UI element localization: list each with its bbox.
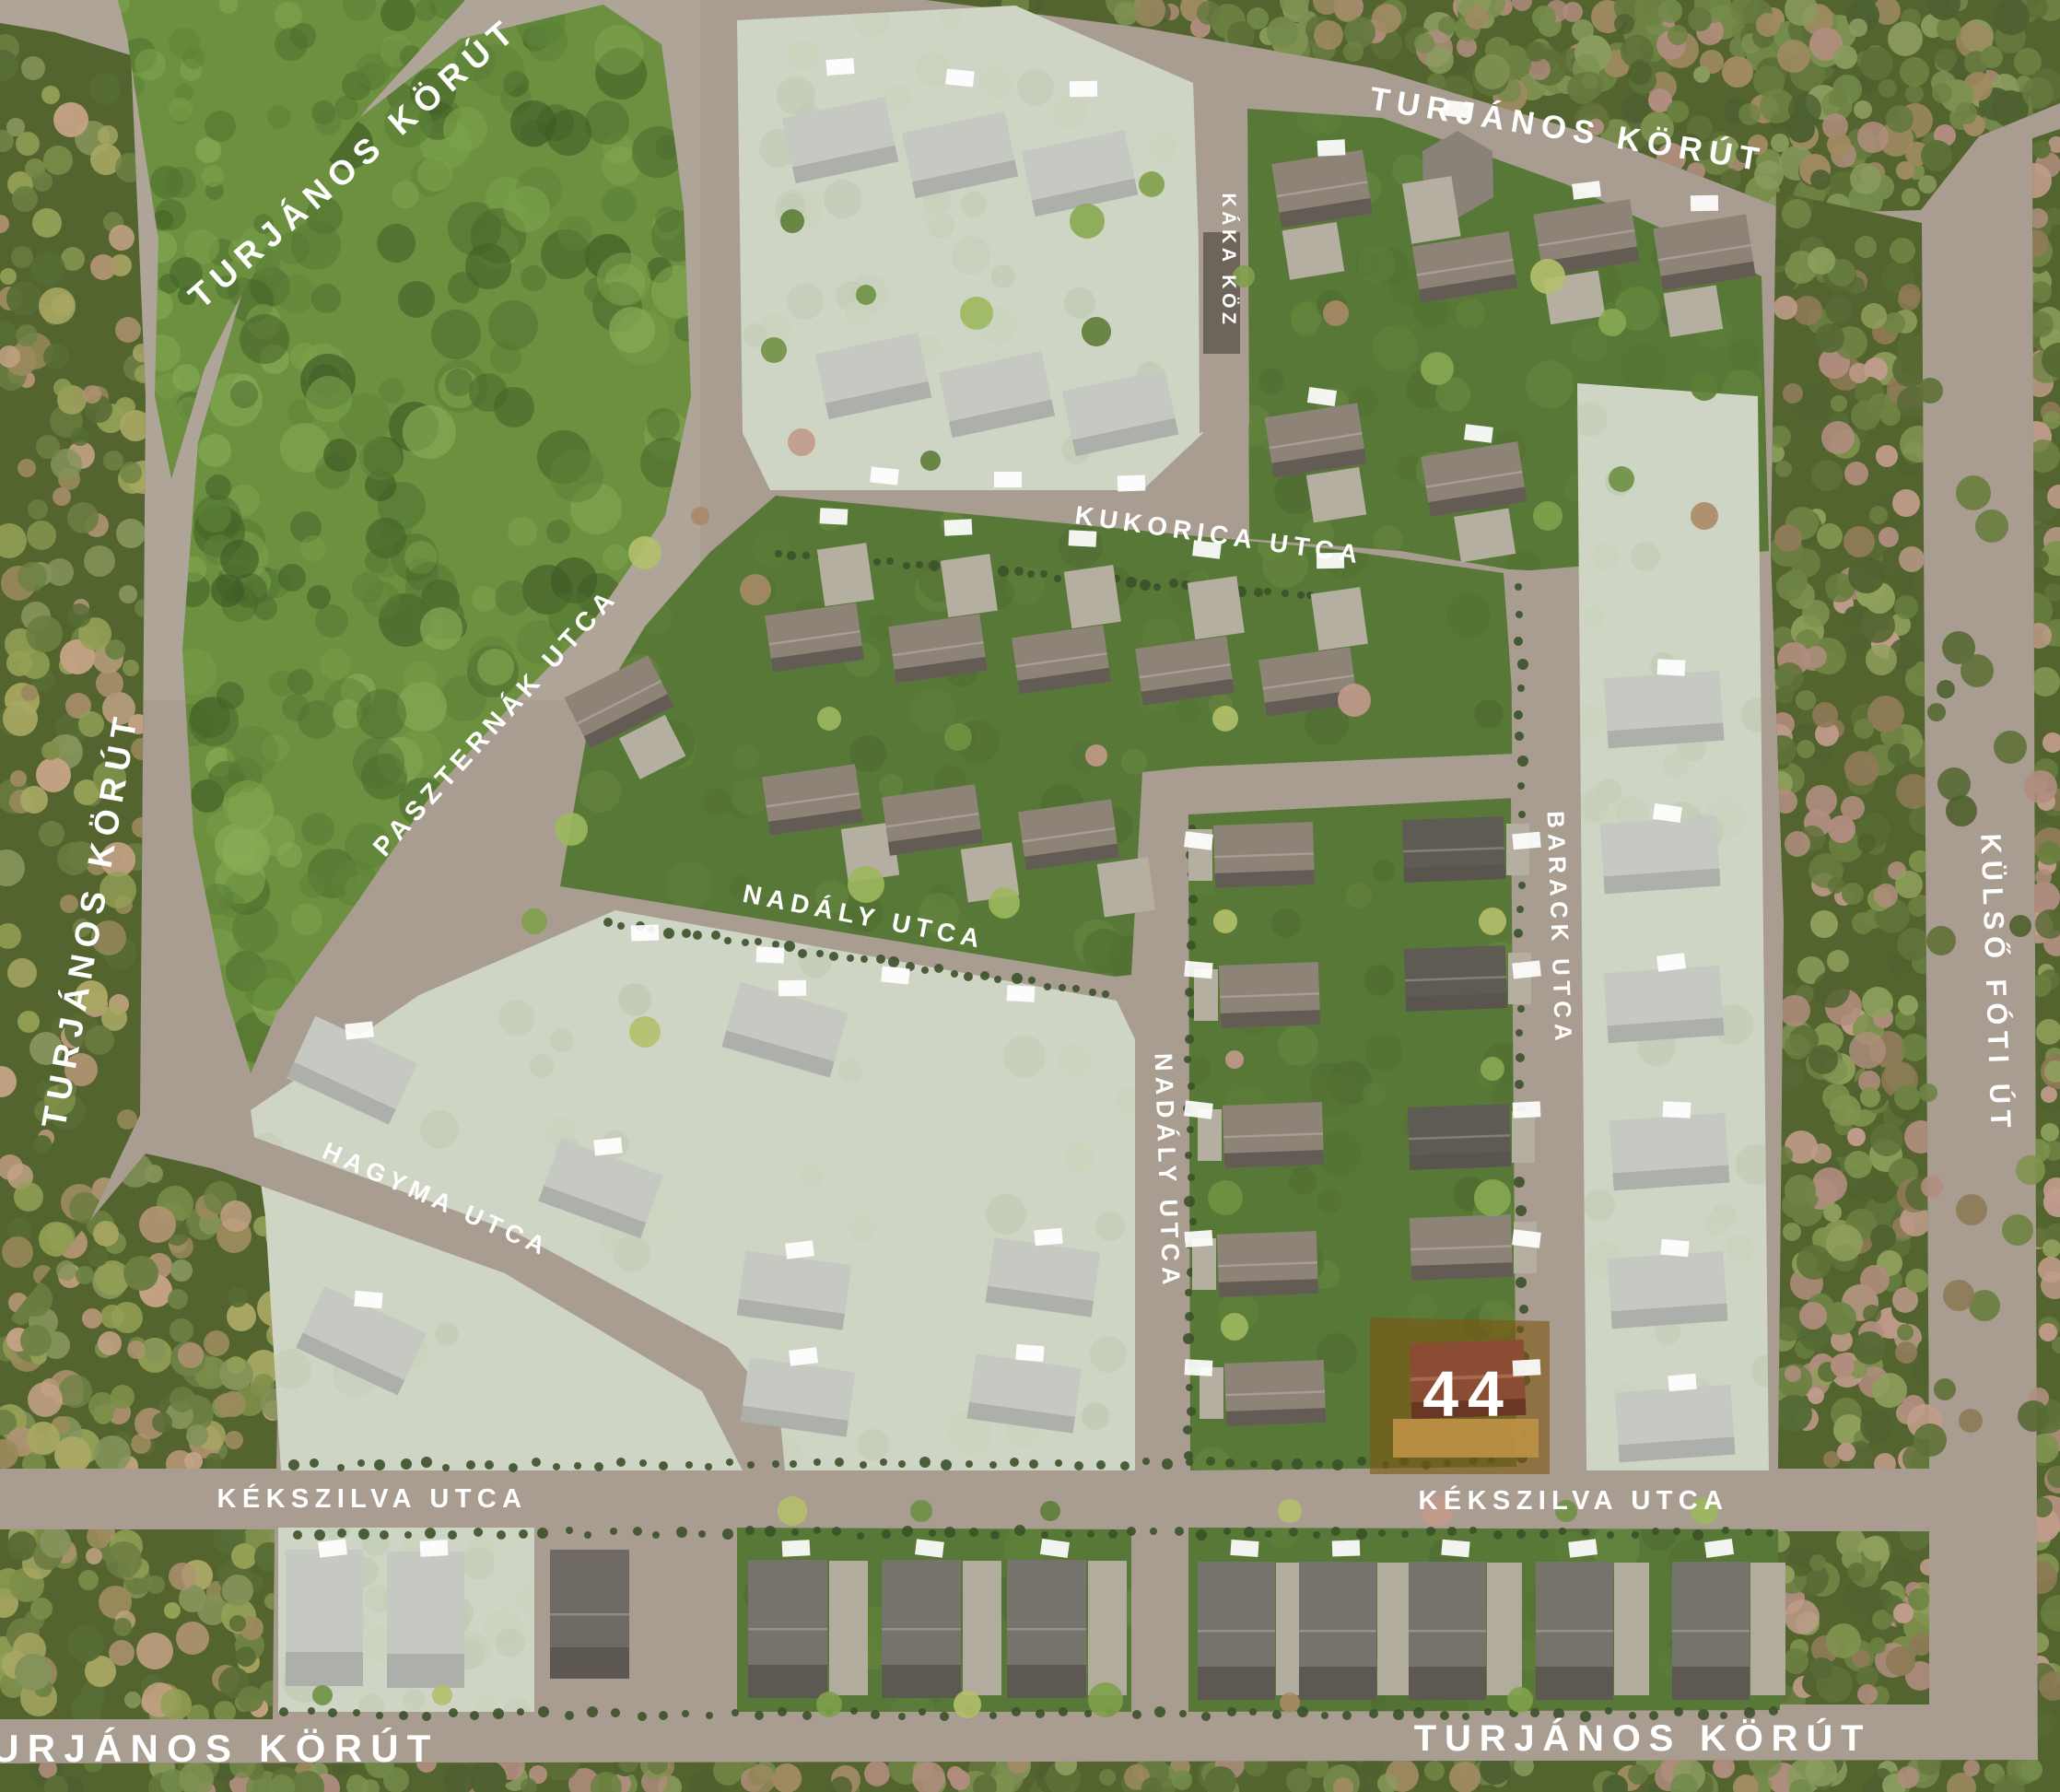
svg-text:KÁKA KÖZ: KÁKA KÖZ xyxy=(1218,193,1239,328)
svg-text:KÉKSZILVA UTCA: KÉKSZILVA UTCA xyxy=(1419,1484,1729,1516)
svg-text:TURJÁNOS KÖRÚT: TURJÁNOS KÖRÚT xyxy=(0,1726,439,1770)
svg-text:44: 44 xyxy=(1422,1358,1512,1430)
svg-text:KÉKSZILVA UTCA: KÉKSZILVA UTCA xyxy=(217,1482,528,1514)
svg-text:TURJÁNOS KÖRÚT: TURJÁNOS KÖRÚT xyxy=(1414,1716,1872,1759)
